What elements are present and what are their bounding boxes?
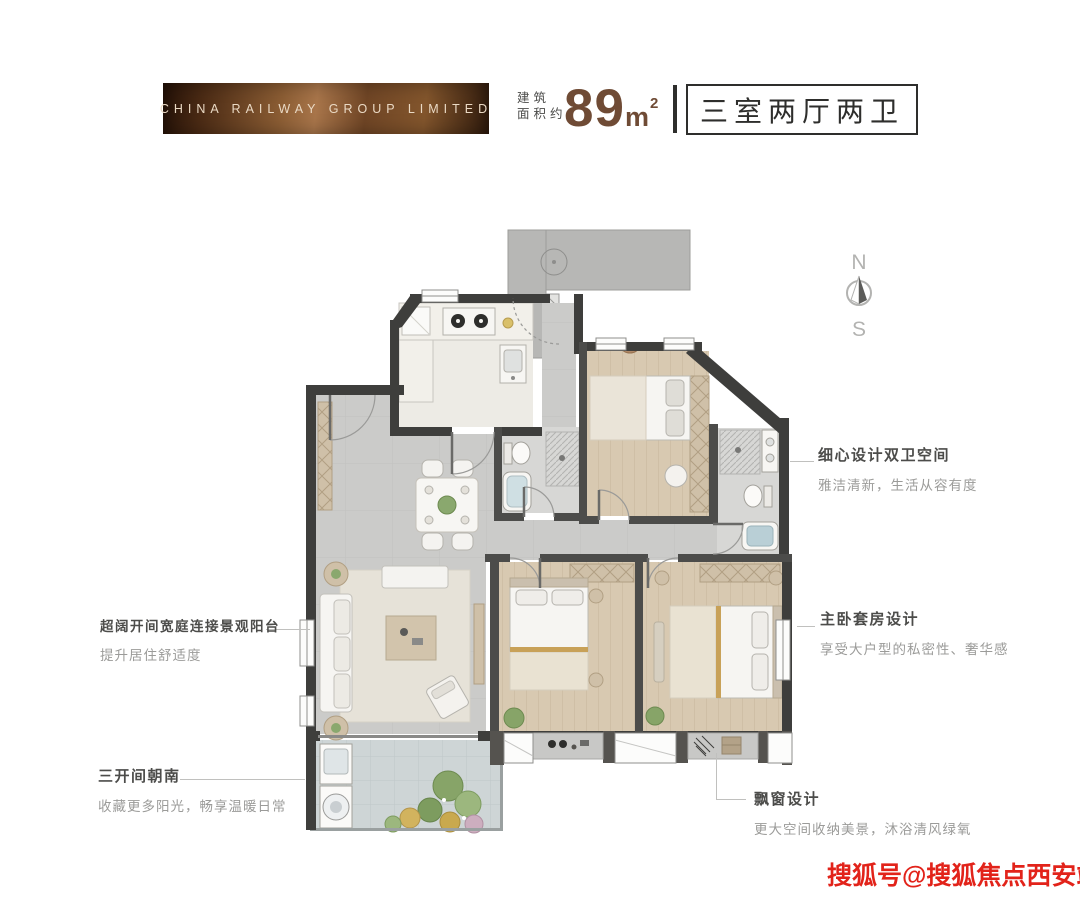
leader-line (716, 753, 717, 800)
leader-line (790, 461, 814, 462)
coffee-table (386, 616, 436, 660)
stove-icon (443, 308, 495, 335)
toilet-icon-1 (504, 442, 530, 464)
callout-subtitle: 收藏更多阳光，畅享温暖日常 (98, 795, 287, 815)
leader-line (797, 626, 815, 627)
area-label-line2: 面积约 (517, 106, 567, 122)
callout-bay-window: 飘窗设计 更大空间收纳美景，沐浴清风绿氧 (754, 788, 972, 838)
area-label-line1: 建筑 (517, 90, 567, 106)
callout-title: 细心设计双卫空间 (818, 444, 978, 465)
callout-dual-bath: 细心设计双卫空间 雅洁清新，生活从容有度 (818, 444, 978, 494)
callout-title: 飘窗设计 (754, 788, 972, 809)
watermark: 搜狐号@搜狐焦点西安站 (827, 856, 1080, 892)
plant (504, 708, 524, 728)
brand-name: CHINA RAILWAY GROUP LIMITED (160, 102, 492, 116)
layout-type-box: 三室两厅两卫 (686, 84, 918, 135)
leader-line (716, 799, 746, 800)
tv-console (474, 604, 484, 684)
wardrobe-3 (690, 376, 709, 512)
callout-subtitle: 享受大户型的私密性、奢华感 (820, 638, 1009, 658)
bench-table (382, 566, 448, 588)
kitchen-dish (503, 318, 513, 328)
area-unit-sup: 2 (650, 95, 659, 112)
callout-title: 超阔开间宽庭连接景观阳台 (100, 615, 280, 635)
area-unit: m (625, 102, 650, 132)
vanity-icon-2 (762, 430, 778, 472)
callout-south-facing: 三开间朝南 收藏更多阳光，畅享温暖日常 (98, 765, 287, 815)
bathtub-icon-2 (742, 522, 778, 550)
chair-3 (665, 465, 687, 487)
header-divider (673, 85, 677, 133)
compass: N S (840, 252, 878, 341)
brand-banner: CHINA RAILWAY GROUP LIMITED (163, 83, 489, 134)
bench (654, 622, 664, 682)
area-label: 建筑 面积约 (517, 90, 567, 122)
toilet-icon-2 (744, 485, 772, 507)
callout-master: 主卧套房设计 享受大户型的私密性、奢华感 (820, 608, 1009, 658)
bed-3 (590, 376, 690, 440)
floorplan-page: CHINA RAILWAY GROUP LIMITED 建筑 面积约 89m2 … (0, 0, 1080, 899)
compass-south-label: S (840, 319, 878, 341)
bay-windows (490, 731, 792, 765)
callout-subtitle: 更大空间收纳美景，沐浴清风绿氧 (754, 818, 972, 838)
compass-needle-icon (840, 274, 878, 314)
callout-subtitle: 雅洁清新，生活从容有度 (818, 474, 978, 494)
bed-master (670, 606, 782, 698)
centerpiece-plant (438, 496, 456, 514)
wardrobe-master (700, 564, 780, 582)
laundry-sink-icon (320, 744, 352, 784)
compass-north-label: N (840, 252, 878, 274)
callout-subtitle: 提升居住舒适度 (100, 644, 280, 664)
callout-title: 主卧套房设计 (820, 608, 1009, 629)
washing-machine-icon (320, 786, 352, 828)
plant (646, 707, 664, 725)
kitchen-sink-icon (500, 345, 526, 383)
sofa (320, 594, 352, 712)
area-value: 89m2 (564, 78, 659, 139)
layout-type-text: 三室两厅两卫 (700, 90, 904, 130)
bathtub-icon-1 (503, 472, 531, 511)
callout-balcony: 超阔开间宽庭连接景观阳台 提升居住舒适度 (100, 615, 280, 664)
bed-2 (510, 578, 588, 690)
floor-plan (298, 228, 798, 838)
callout-title: 三开间朝南 (98, 765, 287, 786)
